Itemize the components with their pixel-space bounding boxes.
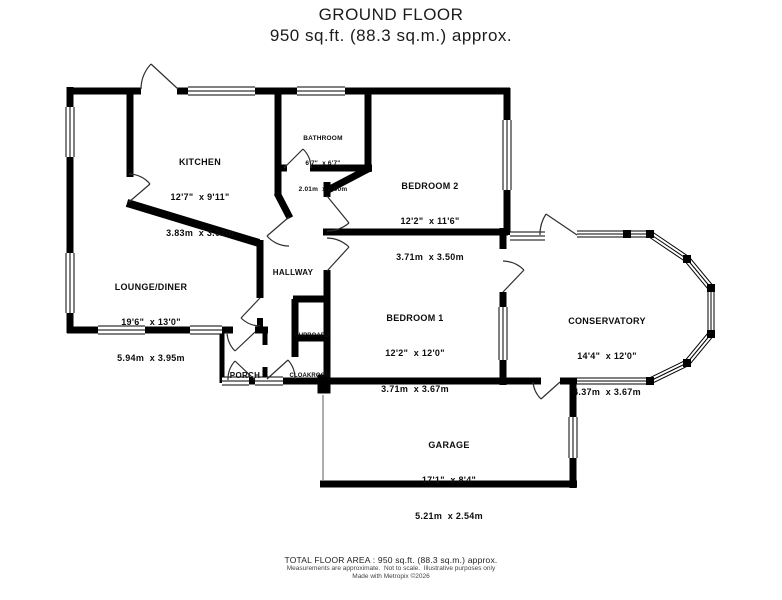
wall-joint: [646, 377, 654, 385]
room-dims-imperial: 12'2" x 12'0": [381, 348, 449, 360]
room-label-hallway: HALLWAY: [273, 247, 313, 299]
room-label-cloakroom: CLOAKROOM: [290, 357, 331, 396]
room-name: KITCHEN: [166, 157, 234, 169]
room-dims-imperial: 12'7" x 9'11": [166, 192, 234, 204]
room-name: CLOAKROOM: [290, 373, 331, 381]
window: [687, 334, 711, 363]
door-swing: [227, 332, 235, 351]
room-dims-imperial: 12'2" x 11'6": [396, 216, 464, 228]
door-swing: [267, 217, 289, 236]
room-label-bedroom1: BEDROOM 1 12'2" x 12'0" 3.71m x 3.67m: [381, 290, 449, 419]
door-swing: [541, 382, 560, 399]
room-label-kitchen: KITCHEN 12'7" x 9'11" 3.83m x 3.02m: [166, 134, 234, 263]
room-name: CUPBOARD: [294, 333, 329, 341]
room-dims-imperial: 14'4" x 12'0": [568, 351, 646, 363]
door-swing: [267, 360, 288, 379]
room-name: LOUNGE/DINER: [115, 282, 188, 294]
wall-joint: [623, 230, 631, 238]
room-label-bathroom: BATHROOM 6'7" x 6'7" 2.01m x 2.00m: [299, 118, 348, 211]
door-swing: [503, 261, 524, 270]
room-dims-imperial: 19'6" x 13'0": [115, 317, 188, 329]
room-dims-metric: 3.71m x 3.67m: [381, 384, 449, 396]
door-swing: [546, 214, 577, 235]
room-label-conservatory: CONSERVATORY 14'4" x 12'0" 4.37m x 3.67m: [568, 293, 646, 422]
window: [687, 259, 711, 288]
room-name: GARAGE: [415, 440, 483, 452]
room-dims-metric: 2.01m x 2.00m: [299, 186, 348, 194]
room-name: HALLWAY: [273, 268, 313, 278]
room-dims-metric: 3.71m x 3.50m: [396, 252, 464, 264]
door-swing: [151, 64, 178, 89]
room-dims-metric: 5.21m x 2.54m: [415, 511, 483, 523]
wall: [277, 193, 290, 218]
room-dims-metric: 3.83m x 3.02m: [166, 228, 234, 240]
wall-joint: [683, 255, 691, 263]
room-label-garage: GARAGE 17'1" x 8'4" 5.21m x 2.54m: [415, 417, 483, 546]
door-swing: [235, 332, 255, 351]
floorplan-page: GROUND FLOOR 950 sq.ft. (88.3 sq.m.) app…: [0, 0, 782, 600]
room-label-cupboard: CUPBOARD: [294, 317, 329, 356]
room-name: BATHROOM: [299, 135, 348, 143]
plan-footer: TOTAL FLOOR AREA : 950 sq.ft. (88.3 sq.m…: [0, 555, 782, 581]
room-name: BEDROOM 2: [396, 181, 464, 193]
door-swing: [267, 236, 289, 246]
wall-joints-layer: [318, 230, 716, 394]
door-swing: [129, 184, 150, 202]
door-swing: [327, 238, 349, 247]
wall-joint: [707, 330, 715, 338]
room-name: PORCH: [230, 371, 260, 381]
credit: Made with Metropix ©2026: [0, 573, 782, 581]
door-swing: [533, 382, 541, 399]
room-label-bedroom2: BEDROOM 2 12'2" x 11'6" 3.71m x 3.50m: [396, 158, 464, 287]
room-dims-imperial: 6'7" x 6'7": [299, 160, 348, 168]
door-swing: [327, 247, 349, 271]
room-dims-imperial: 17'1" x 8'4": [415, 475, 483, 487]
room-dims-metric: 4.37m x 3.67m: [568, 387, 646, 399]
window: [650, 363, 687, 381]
room-name: CONSERVATORY: [568, 316, 646, 328]
total-floor-area: TOTAL FLOOR AREA : 950 sq.ft. (88.3 sq.m…: [0, 555, 782, 565]
door-swing: [141, 64, 151, 89]
wall-joint: [707, 284, 715, 292]
room-name: BEDROOM 1: [381, 313, 449, 325]
room-label-lounge-diner: LOUNGE/DINER 19'6" x 13'0" 5.94m x 3.95m: [115, 259, 188, 388]
room-label-porch: PORCH: [230, 350, 260, 402]
window: [650, 234, 687, 259]
wall-joint: [683, 359, 691, 367]
disclaimer: Measurements are approximate. Not to sca…: [0, 565, 782, 573]
room-dims-metric: 5.94m x 3.95m: [115, 353, 188, 365]
door-swing: [241, 298, 260, 318]
door-swing: [503, 270, 524, 292]
wall-joint: [646, 230, 654, 238]
